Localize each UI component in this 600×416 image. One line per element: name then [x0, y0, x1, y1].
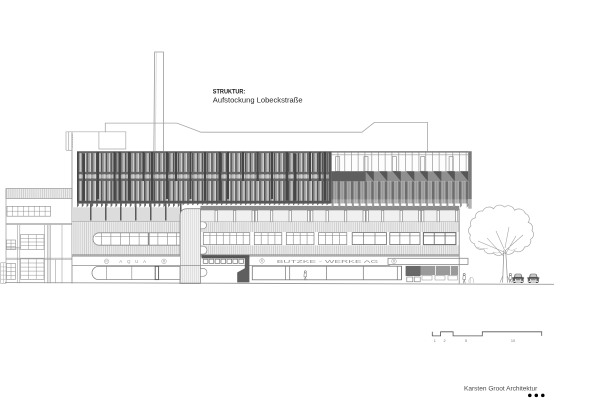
svg-text:2: 2	[444, 339, 446, 343]
svg-text:STRUKTUR:: STRUKTUR:	[213, 89, 246, 96]
svg-text:1: 1	[434, 339, 436, 343]
svg-text:5: 5	[465, 339, 467, 343]
svg-text:Aufstockung Lobeckstraße: Aufstockung Lobeckstraße	[213, 98, 303, 105]
svg-text:Karsten Groot Architektur: Karsten Groot Architektur	[464, 385, 537, 392]
svg-text:AQUA: AQUA	[119, 259, 151, 264]
svg-text:BUTZKE - WERKE AG: BUTZKE - WERKE AG	[277, 259, 380, 264]
svg-text:10: 10	[511, 339, 515, 343]
